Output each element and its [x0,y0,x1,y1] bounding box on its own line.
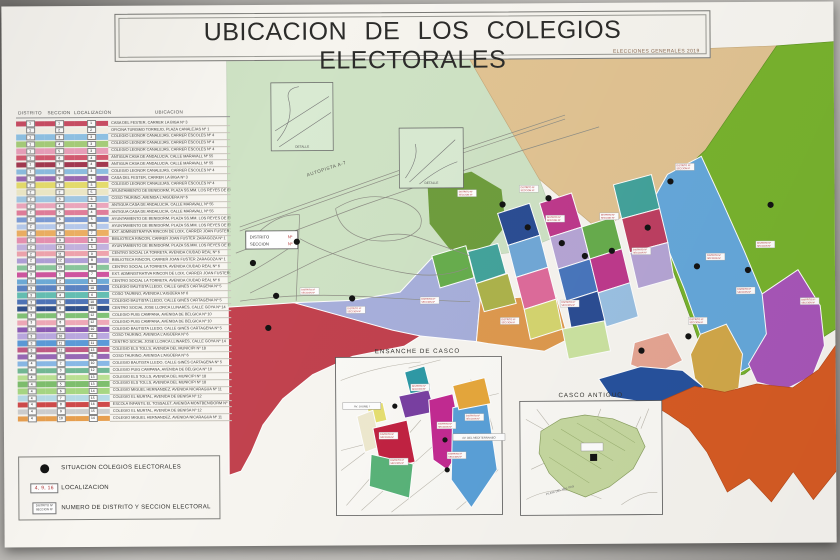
seccion-cell: 4 [45,203,75,209]
district-section-chip: DISTRITO NºSECCION Nº [756,241,775,248]
distrito-cell: 2 [17,217,45,223]
seccion-cell: 6 [45,306,75,312]
college-dot [349,295,355,301]
district-section-chip: DISTRITO NºSECCION Nº [519,185,538,192]
localizacion-cell: 2 [74,127,108,133]
localizacion-cell: 1 [74,121,108,127]
college-dot [392,404,397,409]
distrito-cell: 3 [17,306,45,312]
localizacion-cell: 16 [76,402,110,408]
distrito-cell: 1 [16,135,44,141]
distrito-cell: 4 [18,409,46,415]
seccion-cell: 7 [45,224,75,230]
localizacion-cell: 5 [75,217,109,223]
localizacion-cell: 6 [75,292,109,298]
seccion-cell: 5 [45,210,75,216]
title-box: UBICACION DE LOS COLEGIOS ELECTORALES EL… [114,10,710,62]
distrito-cell: 2 [17,244,45,250]
distrito-cell: 1 [16,169,44,175]
seccion-cell: 10 [45,333,75,339]
localizacion-cell: 4 [75,210,109,216]
distrito-sample-line2: SECCION Nº [36,507,53,511]
distrito-cell: 3 [17,320,45,326]
localizacion-cell: 13 [76,374,110,380]
college-dot [525,224,531,230]
casco-college-square [590,454,597,461]
district-section-chip: DISTRITO NºSECCION Nº [736,287,755,294]
localizacion-cell: 12 [76,368,110,374]
localizacion-cell: 5 [74,189,108,195]
distrito-cell: 2 [17,238,45,244]
localizacion-cell: 15 [76,395,110,401]
district-section-chip: DISTRITO NºSECCION Nº [389,458,408,465]
detail-inset-1: DETALLE [271,83,333,151]
localizacion-cell: 4 [74,162,108,168]
localizacion-cell: 6 [75,196,109,202]
seccion-cell: 10 [46,416,76,422]
district-section-chip: DISTRITO NºSECCION Nº [465,413,484,420]
district-section-chip: DISTRITO NºSECCION Nº [346,306,365,313]
distrito-cell: 2 [17,265,45,271]
seccion-cell: 3 [45,285,75,291]
localizacion-cell: 5 [75,224,109,230]
page-title: UBICACION DE LOS COLEGIOS ELECTORALES [115,15,709,77]
district-section-chip: DISTRITO NºSECCION Nº [688,317,707,324]
district-section-chip: DISTRITO NºSECCION Nº [500,317,519,324]
casco-title: CASCO ANTIGUO [558,392,623,399]
seccion-cell: 7 [46,395,76,401]
distrito-cell: 1 [16,176,44,182]
distrito-cell: 1 [16,128,44,134]
seccion-cell: 8 [45,320,75,326]
college-dot [250,260,256,266]
distrito-cell: 4 [18,368,46,374]
seccion-cell: 8 [45,231,75,237]
college-dot [609,248,615,254]
seccion-cell: 2 [44,128,74,134]
distrito-cell: 3 [17,272,45,278]
seccion-cell: 9 [45,327,75,333]
district-section-chip: DISTRITO NºSECCION Nº [447,452,466,459]
svg-text:AV. DEL MEDITERRANEO: AV. DEL MEDITERRANEO [462,436,496,440]
district-section-chip: DISTRITO NºSECCION Nº [420,297,439,304]
localizacion-cell: 14 [76,388,110,394]
distrito-cell: 3 [17,327,45,333]
ensanche-title: ENSANCHE DE CASCO [375,348,460,356]
localizacion-cell: 9 [75,278,109,284]
svg-text:SECCION: SECCION [250,241,269,246]
localizacion-cell: 9 [75,265,109,271]
localizacion-cell: 9 [75,251,109,257]
localizacion-cell: 8 [75,237,109,243]
svg-text:DETALLE: DETALLE [424,181,438,185]
distrito-cell: 1 [16,142,44,148]
seccion-cell: 4 [44,141,74,147]
seccion-cell: 2 [46,361,76,367]
seccion-cell: 4 [46,375,76,381]
seccion-cell: 5 [44,148,74,154]
seccion-cell: 5 [46,381,76,387]
svg-text:Nº: Nº [288,234,293,239]
distrito-seccion-box: DISTRITO Nº SECCION Nº [246,231,298,249]
seccion-cell: 8 [46,402,76,408]
distrito-cell: 3 [17,299,45,305]
college-dot [294,239,300,245]
distrito-cell: 4 [18,375,46,381]
legend-table-rows: 111CASA DEL FESTER, CARRER LA BIGA Nº 31… [16,119,232,422]
localizacion-cell: 3 [74,148,108,154]
legend-table-header: DISTRITO SECCION LOCALIZACION UBICACION [16,109,230,118]
map-key: SITUACION COLEGIOS ELECTORALES 4, 9, 16 … [18,455,220,520]
inset-casco: CASCO ANTIGUO PLAYA DEL MAL PAS [520,392,663,516]
distrito-cell: 4 [18,395,46,401]
localizacion-cell: 10 [76,361,110,367]
header-localizacion: LOCALIZACION [74,110,108,115]
college-dot [667,178,673,184]
college-dot [767,202,773,208]
distrito-cell: 2 [17,231,45,237]
seccion-cell: 9 [44,176,74,182]
svg-text:AV. JAUME I: AV. JAUME I [354,404,370,408]
seccion-cell: 12 [45,258,75,264]
district-section-chip: DISTRITO NºSECCION Nº [300,287,319,294]
seccion-cell: 8 [44,169,74,175]
detail-inset-2: DETALLE [399,128,463,188]
localizacion-cell: 11 [75,340,109,346]
distrito-cell: 2 [16,183,44,189]
distrito-cell: 4 [17,354,45,360]
localizacion-cell: 12 [75,320,109,326]
key-label-situacion: SITUACION COLEGIOS ELECTORALES [61,464,211,471]
college-dot [545,195,551,201]
seccion-cell: 1 [44,121,74,127]
localizacion-cell: 6 [75,333,109,339]
college-dot [445,467,450,472]
distrito-cell: 2 [17,224,45,230]
seccion-cell: 2 [44,189,74,195]
seccion-cell: 10 [45,244,75,250]
distrito-cell: 4 [18,402,46,408]
localizacion-cell: 3 [74,169,108,175]
legend-table: DISTRITO SECCION LOCALIZACION UBICACION … [16,109,232,422]
key-item-situacion: SITUACION COLEGIOS ELECTORALES [27,458,211,477]
distrito-cell: 3 [17,279,45,285]
distrito-cell: 3 [17,334,45,340]
localizacion-sample-box: 4, 9, 16 [31,483,58,493]
header-ubicacion: UBICACION [108,109,230,115]
college-dot [645,224,651,230]
key-label-distrito: NUMERO DE DISTRITO Y SECCION ELECTORAL [61,504,211,511]
district-section-chip: DISTRITO NºSECCION Nº [457,189,476,196]
svg-text:DISTRITO: DISTRITO [250,234,270,239]
seccion-cell: 2 [45,279,75,285]
distrito-cell: 3 [17,313,45,319]
localizacion-cell: 8 [75,258,109,264]
header-distrito: DISTRITO [16,110,44,115]
distrito-cell: 2 [17,196,45,202]
distrito-cell: 1 [16,121,44,127]
localizacion-cell: 12 [75,313,109,319]
seccion-cell: 1 [45,272,75,278]
seccion-cell: 11 [45,251,75,257]
district-section-chip: DISTRITO NºSECCION Nº [632,247,651,254]
photo-background: AUTOPISTA A-7 DETALLE DETALLE DISTRITO N… [0,0,840,560]
key-item-localizacion: 4, 9, 16 LOCALIZACION [27,478,211,497]
localizacion-cell: 3 [74,134,108,140]
localizacion-cell: 7 [75,272,109,278]
college-dot [559,240,565,246]
college-dot [638,348,644,354]
distrito-cell: 4 [18,382,46,388]
seccion-cell: 6 [46,388,76,394]
distrito-cell: 1 [16,155,44,161]
district-section-chip: DISTRITO NºSECCION Nº [411,384,430,391]
localizacion-cell: 10 [75,285,109,291]
svg-text:Nº: Nº [288,241,293,246]
college-dot [442,437,447,442]
district-section-chip: DISTRITO NºSECCION Nº [600,213,619,220]
seccion-cell: 11 [45,340,75,346]
seccion-cell: 9 [45,237,75,243]
distrito-cell: 2 [16,190,44,196]
inset-ensanche: ENSANCHE DE CASCO [335,347,505,515]
distrito-cell: 3 [17,341,45,347]
college-dot [685,333,691,339]
distrito-cell: 3 [17,347,45,353]
seccion-cell: 5 [45,299,75,305]
college-dot [582,253,588,259]
seccion-cell: 6 [44,155,74,161]
distrito-cell: 1 [16,148,44,154]
seccion-cell: 7 [45,313,75,319]
page-subtitle: ELECCIONES GENERALES 2019 [613,48,700,55]
seccion-cell: 13 [45,265,75,271]
key-item-distrito: DISTRITO Nº SECCION Nº NUMERO DE DISTRIT… [27,498,211,517]
localizacion-cell: 13 [75,347,109,353]
localizacion-cell: 4 [74,155,108,161]
localizacion-cell: 3 [74,182,108,188]
seccion-cell: 4 [45,292,75,298]
seccion-cell: 1 [44,183,74,189]
seccion-cell: 3 [44,135,74,141]
distrito-cell: 1 [16,162,44,168]
localizacion-cell: 10 [75,326,109,332]
distrito-cell: 4 [18,416,46,422]
district-section-chip: DISTRITO NºSECCION Nº [379,432,398,439]
distrito-cell: 4 [18,389,46,395]
localizacion-cell: 3 [74,141,108,147]
localizacion-cell: 14 [76,416,110,422]
seccion-cell: 3 [46,368,76,374]
distrito-cell: 2 [17,203,45,209]
district-section-chip: DISTRITO NºSECCION Nº [706,253,725,260]
seccion-cell: 6 [45,217,75,223]
localizacion-cell: 7 [75,230,109,236]
localizacion-cell: 1 [74,176,108,182]
distrito-cell: 2 [17,210,45,216]
localizacion-cell: 11 [75,306,109,312]
college-dot [745,267,751,273]
localizacion-cell: 13 [76,381,110,387]
table-row: 41014COLEGIO MIGUEL HERNANDEZ, AVENIDA N… [18,414,232,422]
seccion-cell: 9 [46,409,76,415]
district-section-chip: DISTRITO NºSECCION Nº [546,215,565,222]
ubicacion-cell: COLEGIO MIGUEL HERNANDEZ, AVENIDA NICARA… [110,414,232,422]
college-dot [499,201,505,207]
distrito-sample-box: DISTRITO Nº SECCION Nº [33,503,56,514]
college-dot [265,325,271,331]
distrito-cell: 4 [18,361,46,367]
localizacion-cell: 15 [76,409,110,415]
seccion-cell: 1 [45,354,75,360]
distrito-cell: 2 [17,251,45,257]
svg-text:DETALLE: DETALLE [295,145,309,149]
header-seccion: SECCION [44,110,74,115]
poster: AUTOPISTA A-7 DETALLE DETALLE DISTRITO N… [1,1,836,547]
college-dot [273,293,279,299]
district-section-chip: DISTRITO NºSECCION Nº [560,300,579,307]
distrito-cell: 3 [17,293,45,299]
distrito-cell: 3 [17,286,45,292]
district-section-chip: DISTRITO NºSECCION Nº [800,297,819,304]
localizacion-cell: 6 [75,354,109,360]
district-section-chip: DISTRITO NºSECCION Nº [675,163,694,170]
college-dot-icon [40,464,49,473]
district-section-chip: DISTRITO NºSECCION Nº [437,422,456,429]
key-label-localizacion: LOCALIZACION [61,484,211,491]
localizacion-cell: 4 [75,203,109,209]
seccion-cell: 7 [44,162,74,168]
distrito-cell: 2 [17,258,45,264]
localizacion-cell: 5 [75,244,109,250]
localizacion-cell: 10 [75,299,109,305]
college-dot [694,263,700,269]
seccion-cell: 12 [45,347,75,353]
seccion-cell: 3 [45,196,75,202]
